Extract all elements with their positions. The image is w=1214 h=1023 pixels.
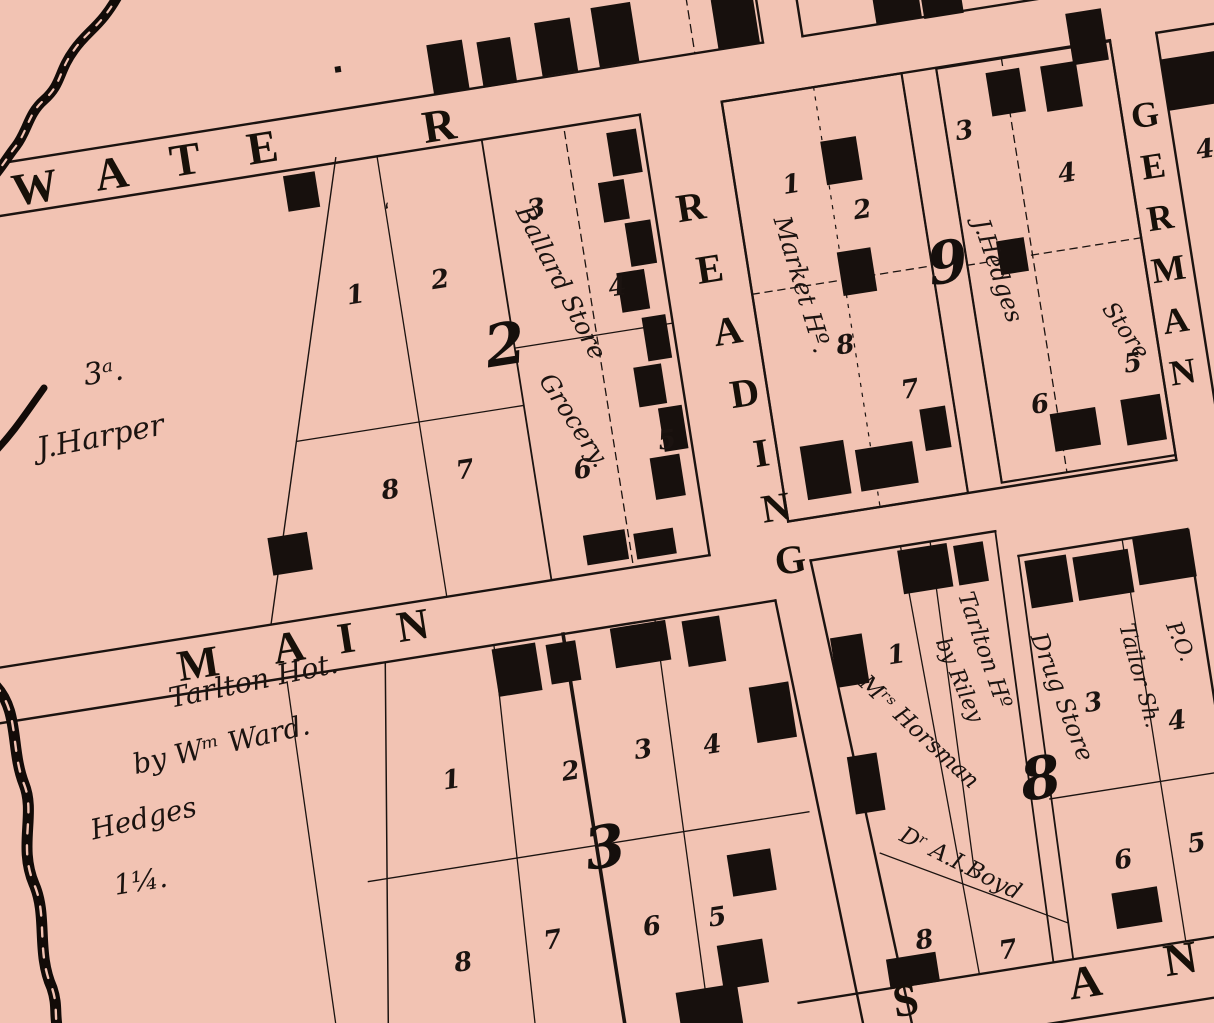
building-footprint bbox=[492, 643, 543, 697]
building-footprint bbox=[335, 66, 342, 73]
building-footprint bbox=[897, 543, 953, 594]
building-footprint bbox=[820, 136, 862, 185]
plat-map-viewport: WATERMAINREADINGGERMANSAN 12873465128734… bbox=[0, 0, 1214, 1023]
building-footprint bbox=[283, 171, 320, 212]
building-footprint bbox=[650, 454, 686, 500]
building-footprint bbox=[986, 68, 1026, 117]
building-footprint bbox=[837, 247, 877, 296]
building-footprint bbox=[1120, 394, 1167, 446]
building-footprint bbox=[1050, 407, 1101, 452]
street-name-letter-water: W bbox=[8, 157, 62, 217]
lot-number: 4 bbox=[1194, 133, 1214, 165]
building-footprint bbox=[1024, 554, 1073, 608]
street-name-letter-german: M bbox=[1148, 245, 1188, 292]
map-label: 3ᵃ. bbox=[81, 352, 126, 393]
building-footprint bbox=[682, 615, 727, 666]
building-footprint bbox=[546, 640, 582, 684]
building-footprint bbox=[953, 541, 989, 585]
building-footprint bbox=[1161, 50, 1214, 111]
building-footprint bbox=[1132, 529, 1197, 585]
building-footprint bbox=[717, 939, 769, 990]
building-footprint bbox=[800, 440, 852, 500]
building-footprint bbox=[633, 363, 667, 407]
building-footprint bbox=[855, 441, 919, 492]
building-footprint bbox=[1040, 61, 1083, 112]
building-footprint bbox=[267, 532, 312, 576]
building-footprint bbox=[749, 681, 797, 743]
building-footprint bbox=[476, 37, 517, 88]
building-footprint bbox=[426, 40, 469, 95]
building-footprint bbox=[1111, 886, 1162, 929]
building-footprint bbox=[1072, 549, 1134, 601]
building-footprint bbox=[711, 0, 760, 50]
building-footprint bbox=[727, 848, 777, 896]
